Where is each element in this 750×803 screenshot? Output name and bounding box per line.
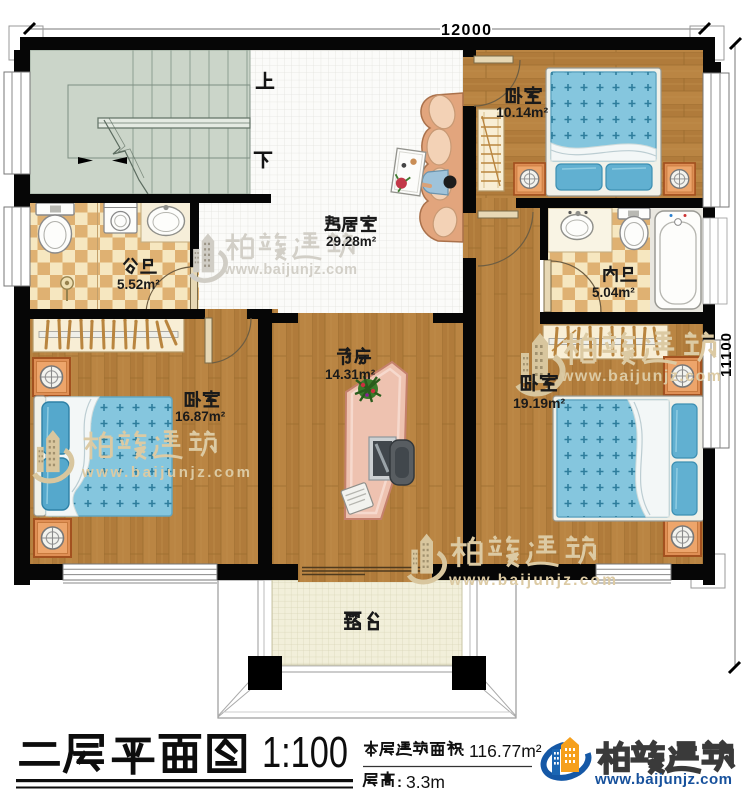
svg-text:10.14m²: 10.14m² [496, 104, 548, 120]
svg-text:5.04m²: 5.04m² [592, 285, 635, 300]
svg-text:www.baijunjz.com: www.baijunjz.com [223, 262, 357, 278]
svg-text:www.baijunjz.com: www.baijunjz.com [594, 771, 732, 788]
svg-text:3.3m: 3.3m [406, 772, 445, 792]
svg-text:29.28m²: 29.28m² [326, 234, 377, 249]
svg-text::: : [460, 743, 465, 760]
svg-text:5.52m²: 5.52m² [117, 277, 160, 292]
svg-text:1:100: 1:100 [262, 728, 348, 777]
svg-text::: : [397, 774, 402, 791]
svg-text:14.31m²: 14.31m² [325, 367, 376, 382]
svg-text:16.87m²: 16.87m² [175, 409, 226, 424]
svg-text:12000: 12000 [441, 22, 491, 39]
svg-text:116.77m²: 116.77m² [469, 741, 542, 761]
svg-text:www.baijunjz.com: www.baijunjz.com [560, 368, 721, 385]
svg-text:11100: 11100 [718, 333, 735, 377]
svg-text:19.19m²: 19.19m² [513, 395, 565, 411]
